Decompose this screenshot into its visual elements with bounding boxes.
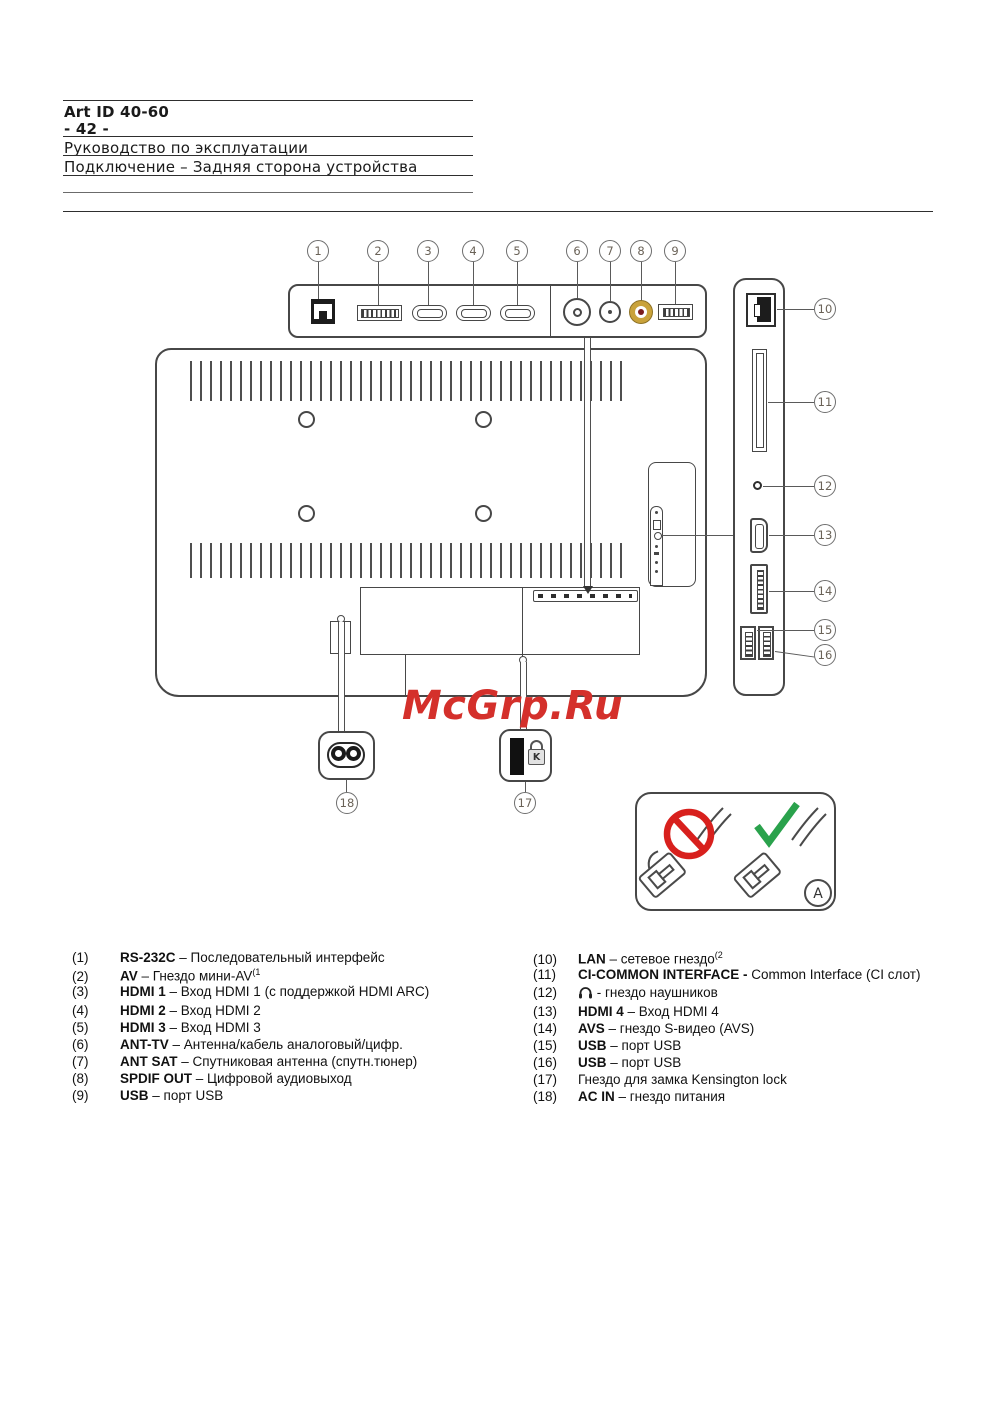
callout-8: 8: [630, 240, 652, 262]
legend-item-1: (1)RS-232C – Последовательный интерфейс: [72, 950, 385, 965]
legend-text: – порт USB: [149, 1088, 224, 1103]
rs232-port: [311, 299, 335, 324]
legend-num: (16): [533, 1055, 578, 1070]
legend-num: (8): [72, 1071, 120, 1086]
headphone-jack: [753, 481, 762, 490]
lan-cable-note-inset: A: [635, 792, 836, 911]
leader-line: [610, 262, 611, 301]
callout-4: 4: [462, 240, 484, 262]
legend-label: AV: [120, 969, 138, 984]
vent-slats-bottom: [190, 543, 630, 578]
panel-location-leader: [584, 338, 591, 588]
leader-arrowhead: [583, 586, 593, 594]
avs-port: [750, 564, 768, 614]
manual-page: Art ID 40-60 - 42 - Руководство по экспл…: [0, 0, 1000, 1415]
legend-num: (15): [533, 1038, 578, 1053]
legend-text: – Вход HDMI 2: [166, 1003, 261, 1018]
callout-17: 17: [514, 792, 536, 814]
hdmi3-port: [500, 305, 535, 321]
ci-slot-inner: [756, 353, 764, 448]
legend-text: – порт USB: [607, 1038, 682, 1053]
legend-num: (17): [533, 1072, 578, 1087]
callout-1: 1: [307, 240, 329, 262]
ant-tv-port-center: [573, 308, 582, 317]
control-dot: [655, 545, 658, 548]
leader-line: [428, 262, 429, 305]
legend-num: (1): [72, 950, 120, 965]
ci-slot: [752, 349, 767, 452]
leader-line: [641, 262, 642, 301]
legend-num: (6): [72, 1037, 120, 1052]
legend-num: (2): [72, 969, 120, 984]
legend-text: – гнездо S-видео (AVS): [605, 1021, 755, 1036]
control-dot: [655, 570, 658, 573]
legend-item-2: (2)AV – Гнездо мини-AV(1: [72, 967, 260, 984]
callout-10: 10: [814, 298, 836, 320]
hdmi1-port-inner: [417, 309, 443, 318]
rs232-port-notch: [319, 311, 327, 321]
legend-label: CI-COMMON INTERFACE -: [578, 967, 748, 982]
callout-18: 18: [336, 792, 358, 814]
legend-item-9: (9)USB – порт USB: [72, 1088, 223, 1103]
callout-11: 11: [814, 391, 836, 413]
legend-text: – Цифровой аудиовыход: [192, 1071, 352, 1086]
leader-anchor-dot: [654, 532, 662, 540]
usb-port-16-pins: [763, 632, 771, 657]
headphones-icon: [578, 985, 593, 1003]
legend-text: – Вход HDMI 1 (с поддержкой HDMI ARC): [166, 984, 429, 999]
inset-a-label: A: [813, 886, 823, 902]
legend-text: – гнездо питания: [615, 1089, 725, 1104]
control-dot: [655, 511, 658, 514]
vesa-hole: [475, 505, 492, 522]
legend-label: SPDIF OUT: [120, 1071, 192, 1086]
legend-label: HDMI 2: [120, 1003, 166, 1018]
strip-connectors: [538, 594, 632, 598]
leader-line: [777, 309, 814, 310]
legend-num: (4): [72, 1003, 120, 1018]
leader-line: [769, 535, 814, 536]
legend-item-4: (4)HDMI 2 – Вход HDMI 2: [72, 1003, 261, 1018]
legend-text: Гнездо для замка Kensington lock: [578, 1072, 787, 1087]
check-icon: [757, 804, 797, 842]
art-id-text: Art ID 40-60: [64, 103, 169, 121]
ac-cable: [338, 622, 345, 731]
callout-12: 12: [814, 475, 836, 497]
legend-label: USB: [120, 1088, 149, 1103]
leader-line: [769, 591, 814, 592]
hdmi2-port: [456, 305, 491, 321]
legend-item-11: (11)CI-COMMON INTERFACE - Common Interfa…: [533, 967, 920, 982]
legend-item-5: (5)HDMI 3 – Вход HDMI 3: [72, 1020, 261, 1035]
hdmi4-port-inner: [755, 524, 764, 549]
legend-label: HDMI 4: [578, 1004, 624, 1019]
legend-num: (3): [72, 984, 120, 999]
callout-13: 13: [814, 524, 836, 546]
legend-text: – Гнездо мини-AV: [138, 969, 253, 984]
legend-num: (12): [533, 985, 578, 1000]
leader-line: [517, 262, 518, 305]
hdmi1-port: [412, 305, 447, 321]
legend-text: – Последовательный интерфейс: [176, 950, 385, 965]
legend-item-3: (3)HDMI 1 – Вход HDMI 1 (с поддержкой HD…: [72, 984, 429, 999]
ant-sat-port-center: [608, 310, 612, 314]
lan-port: [746, 293, 776, 327]
control-button: [653, 520, 661, 530]
callout-7: 7: [599, 240, 621, 262]
header-rule: [63, 155, 473, 156]
legend-text: – сетевое гнездо: [606, 952, 715, 967]
usb-port-15-pins: [745, 632, 753, 657]
legend-footnote-ref: (2: [715, 950, 723, 960]
callout-9: 9: [664, 240, 686, 262]
callout-14: 14: [814, 580, 836, 602]
legend-text: – Спутниковая антенна (спутн.тюнер): [178, 1054, 418, 1069]
legend-num: (10): [533, 952, 578, 967]
control-strip: [650, 506, 663, 586]
prohibition-icon: [667, 812, 711, 856]
legend-text: – порт USB: [607, 1055, 682, 1070]
legend-label: USB: [578, 1038, 607, 1053]
leader-line: [318, 262, 319, 299]
legend-text: - гнездо наушников: [593, 985, 718, 1000]
spdif-port-center: [638, 309, 644, 315]
hdmi4-port: [750, 518, 768, 553]
leader-line: [768, 402, 814, 403]
legend-item-10: (10)LAN – сетевое гнездо(2: [533, 950, 723, 967]
legend-item-15: (15)USB – порт USB: [533, 1038, 681, 1053]
lan-cable-illustration: A: [637, 794, 833, 908]
header-rule-wide: [63, 211, 933, 212]
legend-item-8: (8)SPDIF OUT – Цифровой аудиовыход: [72, 1071, 352, 1086]
legend-footnote-ref: (1: [252, 967, 260, 977]
legend-num: (14): [533, 1021, 578, 1036]
mini-av-port: [357, 305, 402, 321]
header-rule: [63, 175, 473, 176]
hdmi2-port-inner: [461, 309, 487, 318]
leader-line: [675, 262, 676, 304]
callout-3: 3: [417, 240, 439, 262]
legend-label: HDMI 3: [120, 1020, 166, 1035]
leader-line: [346, 780, 347, 792]
legend-item-14: (14)AVS – гнездо S-видео (AVS): [533, 1021, 754, 1036]
hdmi3-port-inner: [505, 309, 531, 318]
leader-line: [763, 486, 814, 487]
leader-line: [525, 782, 526, 792]
legend-label: RS-232C: [120, 950, 176, 965]
legend-item-7: (7)ANT SAT – Спутниковая антенна (спутн.…: [72, 1054, 417, 1069]
legend-label: AC IN: [578, 1089, 615, 1104]
legend-num: (7): [72, 1054, 120, 1069]
legend-num: (9): [72, 1088, 120, 1103]
leader-line: [378, 262, 379, 305]
ac-socket-pin: [346, 746, 361, 761]
legend-label: AVS: [578, 1021, 605, 1036]
legend-item-16: (16)USB – порт USB: [533, 1055, 681, 1070]
vesa-hole: [298, 411, 315, 428]
callout-6: 6: [566, 240, 588, 262]
legend-num: (13): [533, 1004, 578, 1019]
control-dot: [655, 561, 658, 564]
section-title: Подключение – Задняя сторона устройства: [64, 158, 418, 176]
legend-item-6: (6)ANT-TV – Антенна/кабель аналоговый/ци…: [72, 1037, 403, 1052]
ac-socket-pin: [331, 746, 346, 761]
usb-port-9: [658, 304, 693, 320]
control-dash: [654, 552, 659, 555]
legend-label: LAN: [578, 952, 606, 967]
usb-port-15: [740, 626, 756, 660]
lan-port-notch: [754, 304, 761, 317]
leader-line: [473, 262, 474, 305]
legend-item-18: (18)AC IN – гнездо питания: [533, 1089, 725, 1104]
header-rule: [63, 100, 473, 101]
legend-text: – Антенна/кабель аналоговый/цифр.: [169, 1037, 403, 1052]
legend-text: Common Interface (CI слот): [748, 967, 921, 982]
legend-item-13: (13)HDMI 4 – Вход HDMI 4: [533, 1004, 719, 1019]
legend-label: ANT SAT: [120, 1054, 178, 1069]
callout-5: 5: [506, 240, 528, 262]
legend-text: – Вход HDMI 3: [166, 1020, 261, 1035]
legend-label: USB: [578, 1055, 607, 1070]
avs-port-pins: [757, 570, 764, 610]
watermark: McGrp.Ru: [402, 683, 623, 729]
leader-line: [757, 630, 814, 631]
kensington-slot: [510, 738, 524, 775]
panel-divider: [550, 285, 551, 336]
legend-num: (18): [533, 1089, 578, 1104]
legend-text: – Вход HDMI 4: [624, 1004, 719, 1019]
side-panel-leader-line: [660, 535, 733, 536]
vesa-hole: [475, 411, 492, 428]
legend-label: HDMI 1: [120, 984, 166, 999]
callout-15: 15: [814, 619, 836, 641]
header-rule: [63, 192, 473, 193]
callout-16: 16: [814, 644, 836, 666]
usb-port-9-pins: [663, 308, 690, 317]
legend-item-17: (17)Гнездо для замка Kensington lock: [533, 1072, 787, 1087]
vesa-hole: [298, 505, 315, 522]
header-rule: [63, 136, 473, 137]
legend-num: (5): [72, 1020, 120, 1035]
legend-num: (11): [533, 967, 578, 982]
kensington-inset: K: [499, 729, 552, 782]
mini-av-port-pins: [361, 309, 399, 318]
lock-body-icon: K: [528, 749, 545, 765]
callout-2: 2: [367, 240, 389, 262]
legend-label: ANT-TV: [120, 1037, 169, 1052]
vent-slats-top: [190, 361, 630, 401]
usb-port-16: [758, 626, 774, 660]
ac-in-inset: [318, 731, 375, 780]
leader-line: [577, 262, 578, 298]
legend-item-12: (12) - гнездо наушников: [533, 985, 718, 1003]
